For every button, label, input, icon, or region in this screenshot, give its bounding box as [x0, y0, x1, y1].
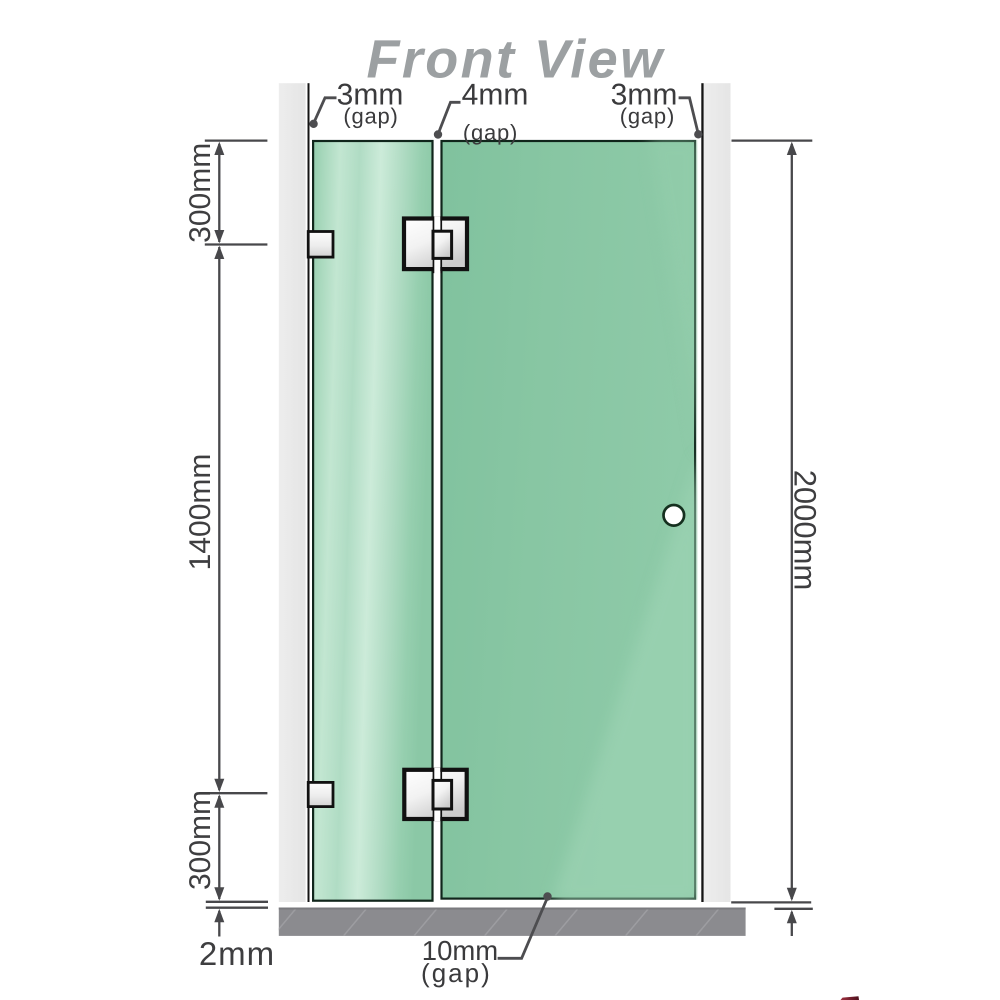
svg-text:1400mm: 1400mm [184, 454, 217, 571]
svg-text:(gap): (gap) [421, 958, 492, 988]
svg-text:4mm: 4mm [462, 79, 529, 112]
svg-text:2mm: 2mm [199, 935, 275, 972]
svg-text:2000mm: 2000mm [787, 470, 822, 591]
svg-text:(gap): (gap) [463, 120, 518, 145]
svg-text:(gap): (gap) [620, 104, 675, 129]
svg-text:(gap): (gap) [343, 104, 398, 129]
svg-text:300mm: 300mm [184, 143, 217, 243]
svg-text:300mm: 300mm [184, 790, 217, 890]
